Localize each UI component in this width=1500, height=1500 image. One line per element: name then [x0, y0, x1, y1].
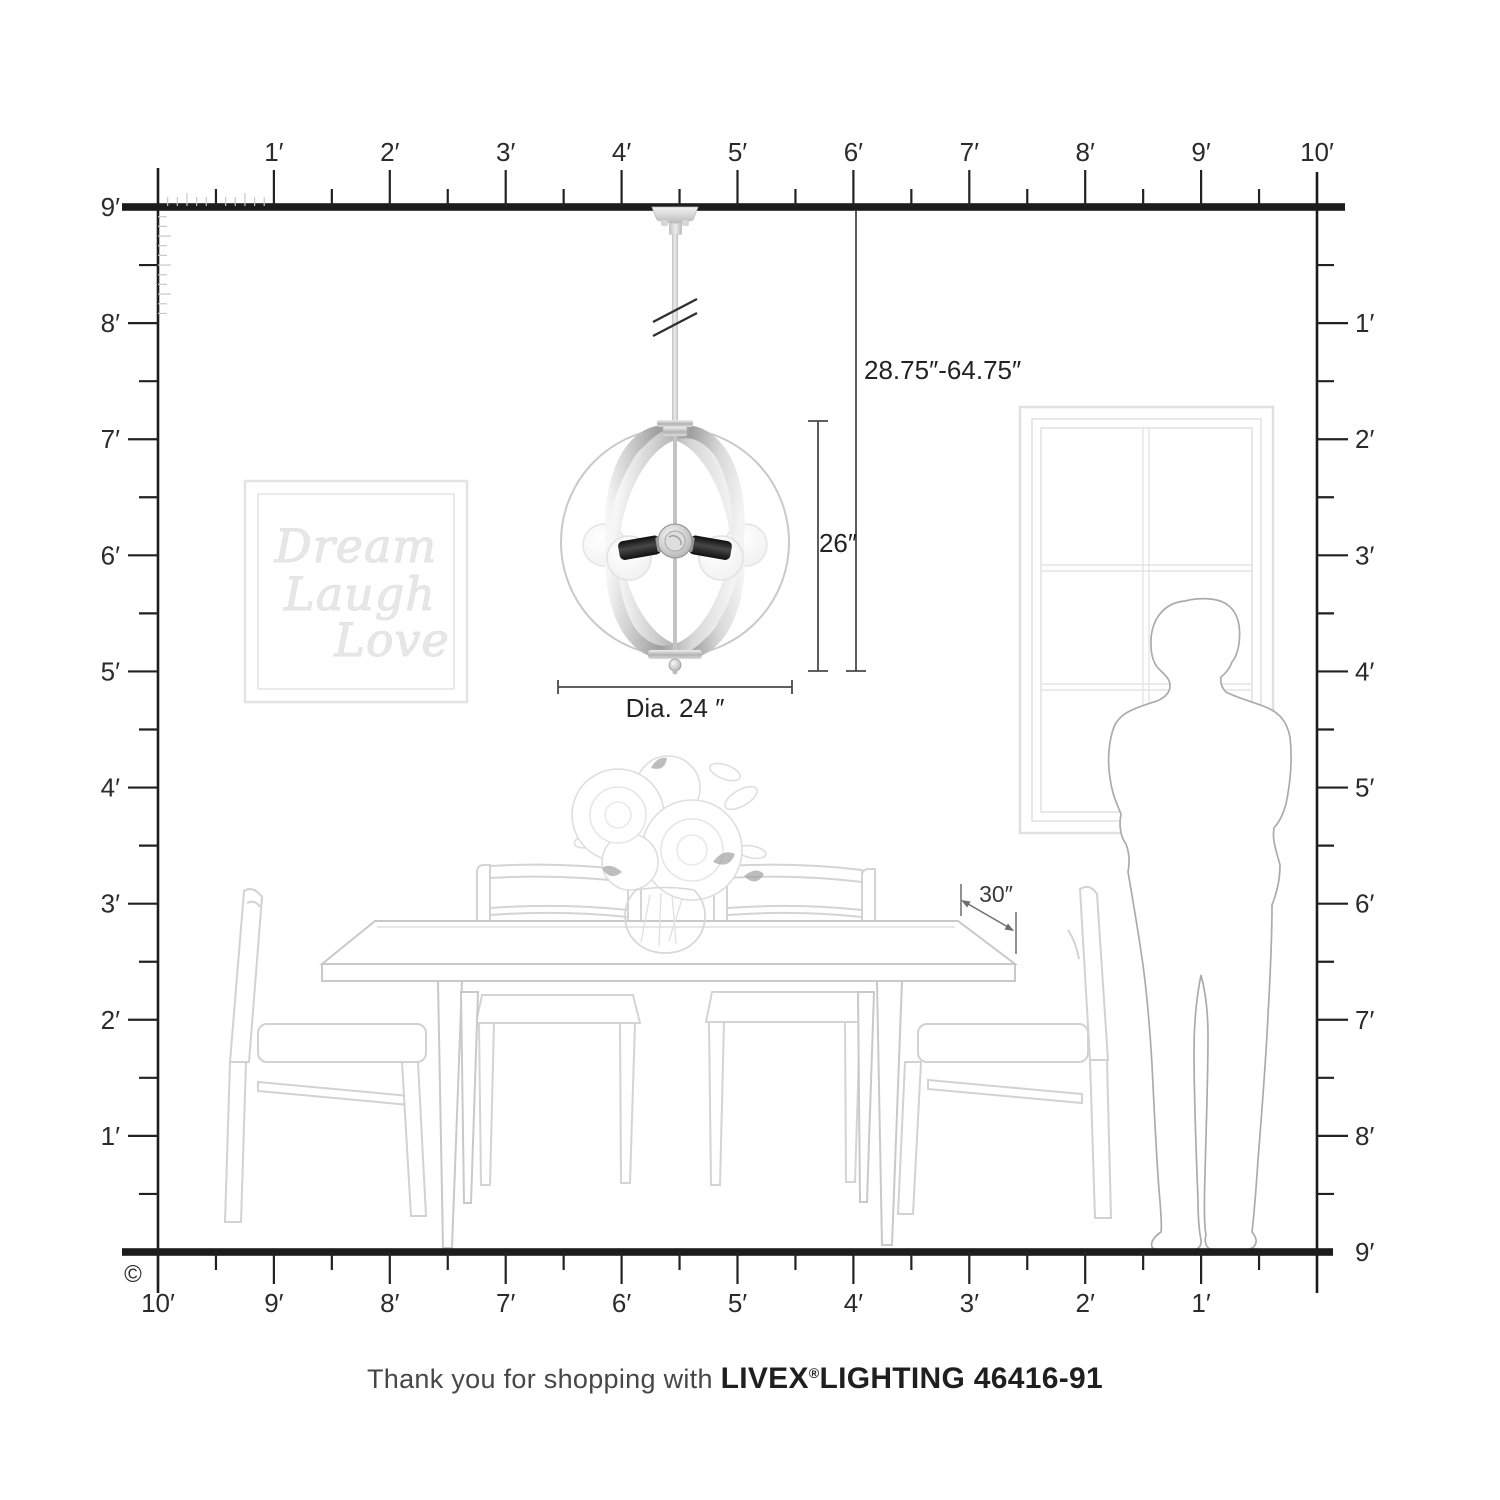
ruler-label: 5′ [728, 1288, 747, 1318]
ruler-label: 10′ [141, 1288, 175, 1318]
ruler-label: 8′ [1076, 137, 1095, 167]
ruler-label: 7′ [101, 424, 120, 454]
ruler-label: 8′ [101, 308, 120, 338]
ruler-label: 2′ [101, 1005, 120, 1035]
chair-stretcher [258, 1082, 410, 1105]
ruler-label: 4′ [1355, 656, 1374, 686]
wall-art-frame: Dream Laugh Love [245, 481, 467, 702]
chair-leg [225, 1062, 246, 1222]
ruler-label: 2′ [380, 137, 399, 167]
ruler-label: 2′ [1355, 424, 1374, 454]
table-leg [461, 992, 478, 1203]
person-outline [1109, 599, 1291, 1253]
chair-post [477, 865, 490, 925]
arrowhead [961, 900, 971, 908]
table-apron [322, 964, 1015, 981]
canopy-tab [682, 220, 689, 226]
table-leg [438, 981, 462, 1248]
ruler-label: 9′ [101, 192, 120, 222]
caption: Thank you for shopping with LIVEX®LIGHTI… [0, 1362, 1470, 1396]
hang-height-label: 28.75″-64.75″ [864, 355, 1021, 385]
diameter-dimension [558, 680, 792, 694]
bottom-finial-tip [673, 670, 678, 675]
ruler-label: 9′ [1191, 137, 1210, 167]
table-leg [858, 992, 874, 1202]
chair-stretcher [928, 1080, 1082, 1103]
orb-top-collar [663, 427, 687, 436]
ceiling-line [122, 203, 1345, 211]
orb-bottom-bar [648, 650, 702, 659]
chair-leg [709, 1022, 724, 1185]
ruler-label: 10′ [1300, 137, 1334, 167]
copyright-symbol: © [124, 1261, 142, 1288]
dining-chair-back-right [706, 865, 875, 1185]
wall-art-line-1: Dream [274, 519, 437, 573]
person-silhouette [1109, 599, 1291, 1254]
arrowhead [1005, 924, 1015, 932]
peony-inner [677, 835, 707, 865]
diameter-label: Dia. 24 ″ [626, 693, 725, 723]
canopy-stem [669, 222, 682, 235]
ruler-label: 4′ [612, 137, 631, 167]
peony-inner [605, 802, 631, 828]
caption-prefix: Thank you for shopping with [367, 1364, 721, 1394]
chair-leg [620, 1023, 635, 1183]
ruler-label: 1′ [264, 137, 283, 167]
inch-ticks [158, 193, 264, 313]
fixture-height-label: 26″ [819, 528, 857, 558]
ruler-label: 9′ [1355, 1237, 1374, 1267]
wall-art-line-3: Love [333, 613, 449, 667]
hang-rod [672, 234, 678, 430]
table-clearance-label: 30″ [979, 881, 1013, 907]
chair-post [862, 869, 875, 925]
registered-mark: ® [809, 1365, 820, 1381]
ruler-label: 4′ [844, 1288, 863, 1318]
ruler-label: 3′ [960, 1288, 979, 1318]
chair-back-detail [1068, 930, 1079, 959]
ruler-label: 7′ [960, 137, 979, 167]
floor-line [122, 1248, 1333, 1256]
ceiling-canopy [652, 207, 698, 223]
chair-leg [402, 1062, 426, 1216]
ruler-label: 3′ [101, 889, 120, 919]
ruler-label: 5′ [101, 656, 120, 686]
chair-top-rail [727, 865, 862, 882]
ruler-label: 4′ [101, 773, 120, 803]
product-number: LIGHTING 46416-91 [819, 1362, 1103, 1395]
ruler-label: 6′ [612, 1288, 631, 1318]
ruler-label: 7′ [1355, 1005, 1374, 1035]
brand-name: LIVEX [721, 1362, 809, 1395]
chair-leg [1090, 1060, 1111, 1218]
chair-seat-cushion [258, 1024, 426, 1062]
leaf [721, 782, 760, 814]
ruler-label: 3′ [1355, 540, 1374, 570]
ruler-label: 7′ [496, 1288, 515, 1318]
chair-leg [479, 1023, 494, 1185]
chair-slat [490, 906, 628, 917]
ruler-label: 5′ [728, 137, 747, 167]
dimension-diagram: Dream Laugh Love [0, 0, 1500, 1500]
pendant-light [561, 207, 789, 675]
ruler-label: 2′ [1076, 1288, 1095, 1318]
chair-seat [476, 995, 640, 1023]
center-hub-inner [665, 531, 685, 551]
ruler-label: 5′ [1355, 773, 1374, 803]
canopy-tab [661, 220, 668, 226]
chair-leg [898, 1062, 921, 1214]
dining-chair-back-left [476, 865, 641, 1185]
ruler-label: 6′ [844, 137, 863, 167]
ruler-label: 3′ [496, 137, 515, 167]
leaf [708, 760, 743, 784]
ruler-label: 1′ [1191, 1288, 1210, 1318]
chair-seat [706, 992, 867, 1022]
ruler-label: 8′ [1355, 1121, 1374, 1151]
ruler-label: 6′ [101, 540, 120, 570]
chair-slat [727, 906, 862, 917]
ruler-label: 8′ [380, 1288, 399, 1318]
ruler-label: 1′ [101, 1121, 120, 1151]
orb-top-collar [657, 420, 693, 427]
ruler-label: 9′ [264, 1288, 283, 1318]
orb-fixture [561, 420, 789, 675]
ruler-label: 6′ [1355, 889, 1374, 919]
ruler-label: 1′ [1355, 308, 1374, 338]
hang-height-dimension [846, 211, 866, 671]
chair-seat-cushion [918, 1024, 1088, 1062]
bottom-finial [669, 659, 681, 671]
